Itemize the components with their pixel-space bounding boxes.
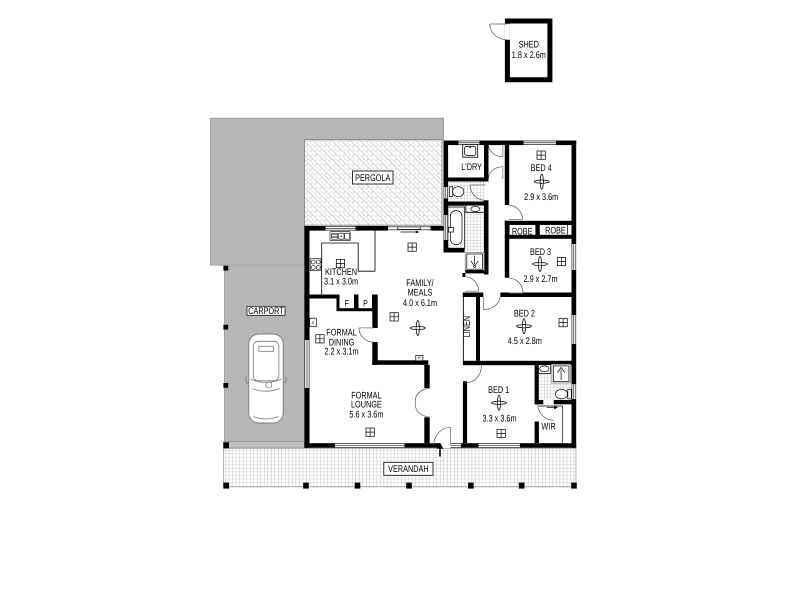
svg-text:ROBE: ROBE	[545, 225, 566, 236]
svg-text:3.3 x 3.6m: 3.3 x 3.6m	[482, 413, 516, 424]
svg-text:F: F	[345, 299, 350, 309]
svg-text:WIR: WIR	[541, 422, 555, 433]
svg-text:4.5 x 2.8m: 4.5 x 2.8m	[508, 336, 542, 347]
svg-text:BED 2: BED 2	[514, 308, 535, 319]
svg-text:CARPORT: CARPORT	[248, 306, 284, 317]
svg-text:BED 3: BED 3	[530, 247, 551, 258]
svg-text:LINEN: LINEN	[462, 316, 473, 338]
svg-text:4.0 x 6.1m: 4.0 x 6.1m	[403, 298, 437, 309]
svg-text:2.9 x 3.6m: 2.9 x 3.6m	[524, 192, 558, 203]
svg-text:VERANDAH: VERANDAH	[388, 464, 429, 475]
svg-text:BED 1: BED 1	[488, 385, 509, 396]
svg-text:PERGOLA: PERGOLA	[355, 173, 391, 184]
svg-text:2.9 x 2.7m: 2.9 x 2.7m	[523, 274, 557, 285]
svg-text:MEALS: MEALS	[408, 288, 433, 299]
svg-text:P: P	[363, 299, 368, 309]
svg-text:5.6 x 3.6m: 5.6 x 3.6m	[349, 409, 383, 420]
svg-text:BED 4: BED 4	[531, 163, 553, 174]
svg-text:H: H	[418, 356, 421, 362]
svg-text:1.8 x 2.6m: 1.8 x 2.6m	[512, 50, 546, 61]
svg-text:3.1 x 3.0m: 3.1 x 3.0m	[324, 277, 358, 288]
svg-text:2.2 x 3.1m: 2.2 x 3.1m	[324, 347, 358, 358]
svg-text:L'DRY: L'DRY	[461, 162, 482, 173]
svg-text:ROBE: ROBE	[512, 226, 533, 237]
